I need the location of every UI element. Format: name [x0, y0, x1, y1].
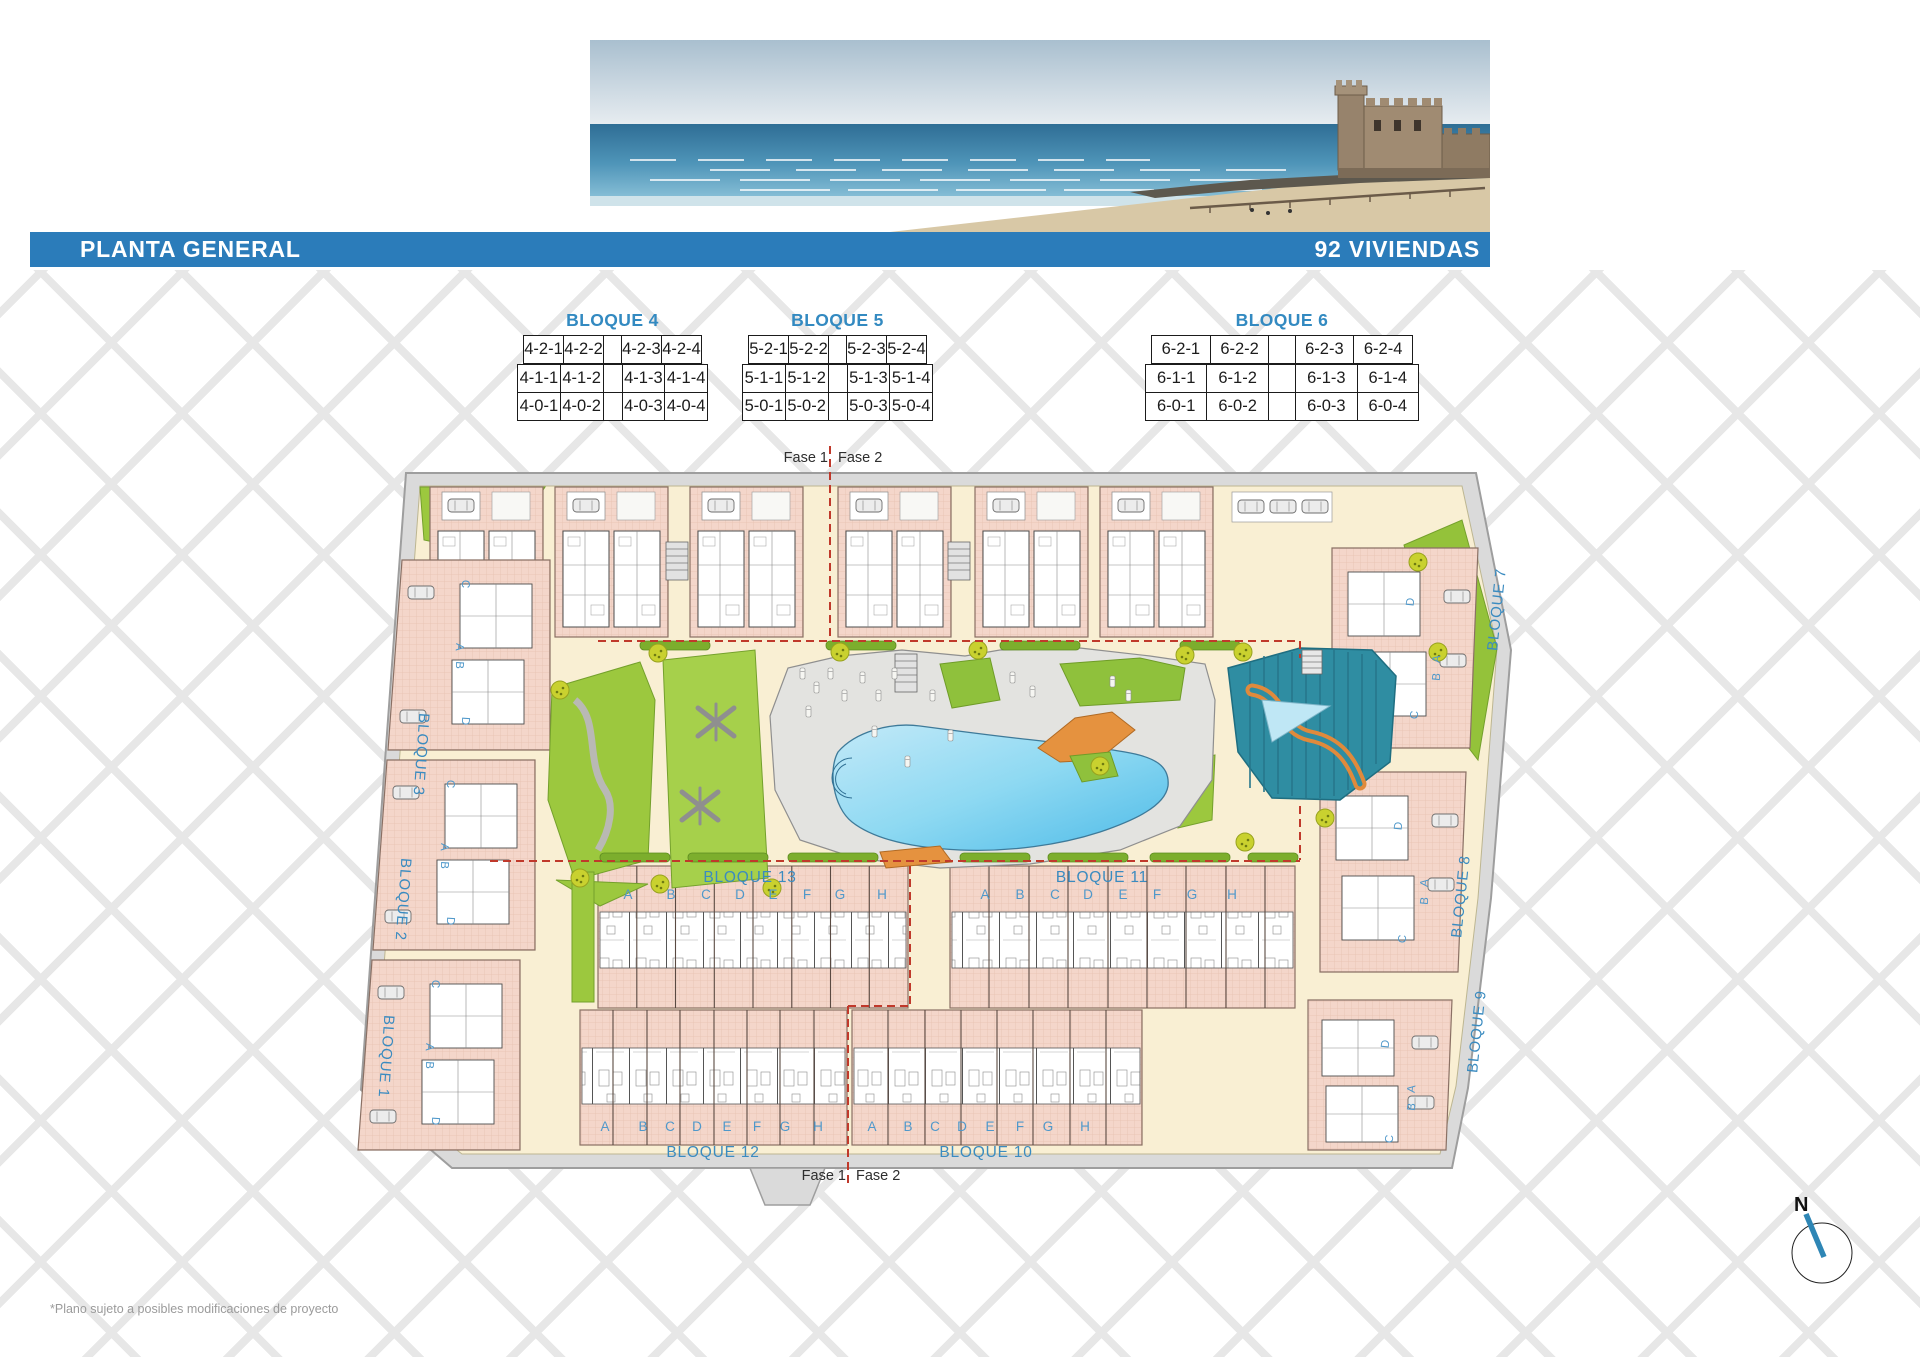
unit-letter: B	[635, 1119, 651, 1134]
cluster-letter: D	[459, 714, 472, 729]
unit-letter: D	[954, 1119, 970, 1134]
fase1-label-top: Fase 1	[728, 450, 828, 466]
cluster-letter: D	[444, 914, 457, 929]
cluster-letter: C	[1396, 931, 1409, 946]
unit-letter: C	[662, 1119, 678, 1134]
cluster-letter: D	[1379, 1036, 1392, 1051]
unit-letter: A	[597, 1119, 613, 1134]
fase1-label-bottom: Fase 1	[746, 1168, 846, 1184]
unit-letter: H	[810, 1119, 826, 1134]
table-title: BLOQUE 5	[742, 310, 933, 331]
fase2-label-bottom: Fase 2	[856, 1168, 900, 1184]
cluster-letter: A	[438, 840, 451, 855]
unit-letter: B	[663, 887, 679, 902]
unit-cell: 4-1-3	[622, 365, 665, 393]
cluster-letter: B	[1405, 1099, 1418, 1114]
unit-letter: F	[799, 887, 815, 902]
compass	[1792, 1214, 1852, 1283]
table-gap-cell	[603, 365, 622, 393]
unit-cell: 5-2-4	[886, 336, 926, 364]
bloque5-units-table: BLOQUE 5 5-2-15-2-25-2-35-2-4 5-1-15-1-2…	[742, 310, 933, 421]
unit-cell: 4-0-4	[665, 393, 708, 421]
table-gap-cell	[828, 393, 847, 421]
cluster-letter: B	[423, 1058, 436, 1073]
unit-letter: A	[620, 887, 636, 902]
disclaimer-footnote: *Plano sujeto a posibles modificaciones …	[50, 1302, 338, 1316]
cluster-letter: B	[453, 658, 466, 673]
bloque5-lower-rows: 5-1-15-1-25-1-35-1-4 5-0-15-0-25-0-35-0-…	[742, 364, 933, 421]
bloque4-floor2-row: 4-2-14-2-24-2-34-2-4	[523, 335, 702, 364]
bloque6-lower-rows: 6-1-16-1-26-1-36-1-4 6-0-16-0-26-0-36-0-…	[1145, 364, 1419, 421]
cluster-letter: B	[438, 858, 451, 873]
unit-letter: B	[1012, 887, 1028, 902]
bloque12-label: BLOQUE 12	[663, 1144, 763, 1162]
unit-letter: H	[874, 887, 890, 902]
unit-cell: 6-0-2	[1207, 393, 1268, 421]
unit-letter: H	[1224, 887, 1240, 902]
unit-cell: 5-2-2	[789, 336, 829, 364]
unit-cell: 5-1-4	[890, 365, 933, 393]
unit-cell: 4-1-2	[560, 365, 603, 393]
unit-letter: E	[1115, 887, 1131, 902]
unit-cell: 6-1-4	[1357, 365, 1418, 393]
unit-cell: 5-0-1	[743, 393, 786, 421]
unit-cell: 6-1-3	[1296, 365, 1357, 393]
cluster-letter: D	[1392, 818, 1405, 833]
unit-cell: 6-0-3	[1296, 393, 1357, 421]
cluster-letter: C	[1408, 707, 1421, 722]
bloque5-floor2-row: 5-2-15-2-25-2-35-2-4	[748, 335, 927, 364]
bloque10-label: BLOQUE 10	[932, 1144, 1040, 1162]
cluster-letter: B	[1430, 669, 1443, 684]
table-gap-cell	[1268, 365, 1295, 393]
table-gap-cell	[828, 365, 847, 393]
unit-cell: 4-0-1	[518, 393, 561, 421]
unit-cell: 5-2-3	[846, 336, 886, 364]
unit-cell: 4-0-3	[622, 393, 665, 421]
unit-cell: 5-1-3	[847, 365, 890, 393]
pool-area	[770, 648, 1215, 868]
unit-letter: F	[1149, 887, 1165, 902]
unit-cell: 4-1-4	[665, 365, 708, 393]
cluster-letter: A	[1430, 651, 1443, 666]
unit-letter: F	[749, 1119, 765, 1134]
unit-cell: 6-1-2	[1207, 365, 1268, 393]
unit-letter: G	[832, 887, 848, 902]
cluster-letter: A	[1405, 1081, 1418, 1096]
unit-cell: 5-1-1	[743, 365, 786, 393]
cluster-letter: C	[429, 977, 442, 992]
unit-cell: 5-0-4	[890, 393, 933, 421]
unit-cell: 4-0-2	[560, 393, 603, 421]
unit-cell: 5-0-3	[847, 393, 890, 421]
unit-letter: D	[732, 887, 748, 902]
cluster-letter: A	[453, 640, 466, 655]
cluster-letter: D	[1404, 594, 1417, 609]
unit-letter: E	[765, 887, 781, 902]
table-title: BLOQUE 4	[517, 310, 708, 331]
unit-letter: F	[1012, 1119, 1028, 1134]
table-gap-cell	[603, 393, 622, 421]
cluster-letter: B	[1418, 893, 1431, 908]
table-gap-cell	[1268, 393, 1295, 421]
plan-sheet: PLANTA GENERAL 92 VIVIENDAS	[0, 0, 1920, 1357]
unit-letter: A	[864, 1119, 880, 1134]
unit-cell: 4-2-3	[621, 336, 661, 364]
unit-cell: 6-2-4	[1354, 336, 1413, 364]
compass-north-label: N	[1794, 1194, 1808, 1217]
top-buildings	[430, 487, 1332, 637]
bloque6-floor2-row: 6-2-16-2-26-2-36-2-4	[1151, 335, 1413, 364]
unit-cell: 6-0-4	[1357, 393, 1418, 421]
unit-letter: E	[719, 1119, 735, 1134]
table-gap-cell	[829, 336, 847, 364]
unit-cell: 4-1-1	[518, 365, 561, 393]
bloque11-label: BLOQUE 11	[1048, 869, 1156, 887]
cluster-letter: A	[1418, 875, 1431, 890]
unit-letter: C	[927, 1119, 943, 1134]
unit-letter: E	[982, 1119, 998, 1134]
bloque13-label: BLOQUE 13	[700, 869, 800, 887]
fase2-label-top: Fase 2	[838, 450, 882, 466]
cluster-letter: C	[459, 577, 472, 592]
bloque6-units-table: BLOQUE 6 6-2-16-2-26-2-36-2-4 6-1-16-1-2…	[1145, 310, 1419, 421]
unit-letter: G	[777, 1119, 793, 1134]
unit-cell: 6-1-1	[1146, 365, 1207, 393]
bloque4-lower-rows: 4-1-14-1-24-1-34-1-4 4-0-14-0-24-0-34-0-…	[517, 364, 708, 421]
unit-cell: 4-2-2	[564, 336, 604, 364]
table-gap-cell	[1269, 336, 1295, 364]
unit-letter: B	[900, 1119, 916, 1134]
unit-letter: D	[689, 1119, 705, 1134]
table-title: BLOQUE 6	[1145, 310, 1419, 331]
unit-letter: D	[1080, 887, 1096, 902]
unit-letter: C	[698, 887, 714, 902]
unit-cell: 4-2-1	[524, 336, 564, 364]
cluster-letter: D	[429, 1114, 442, 1129]
cluster-letter: C	[1383, 1131, 1396, 1146]
unit-letter: H	[1077, 1119, 1093, 1134]
unit-cell: 6-2-2	[1210, 336, 1269, 364]
unit-letter: G	[1184, 887, 1200, 902]
unit-cell: 5-0-2	[785, 393, 828, 421]
unit-letter: G	[1040, 1119, 1056, 1134]
unit-cell: 6-2-1	[1152, 336, 1211, 364]
unit-letter: A	[977, 887, 993, 902]
unit-cell: 5-2-1	[749, 336, 789, 364]
unit-cell: 5-1-2	[785, 365, 828, 393]
unit-cell: 6-0-1	[1146, 393, 1207, 421]
cluster-letter: C	[444, 777, 457, 792]
cluster-letter: A	[423, 1040, 436, 1055]
bloque4-units-table: BLOQUE 4 4-2-14-2-24-2-34-2-4 4-1-14-1-2…	[517, 310, 708, 421]
unit-cell: 4-2-4	[661, 336, 701, 364]
unit-letter: C	[1047, 887, 1063, 902]
unit-cell: 6-2-3	[1295, 336, 1354, 364]
table-gap-cell	[604, 336, 622, 364]
